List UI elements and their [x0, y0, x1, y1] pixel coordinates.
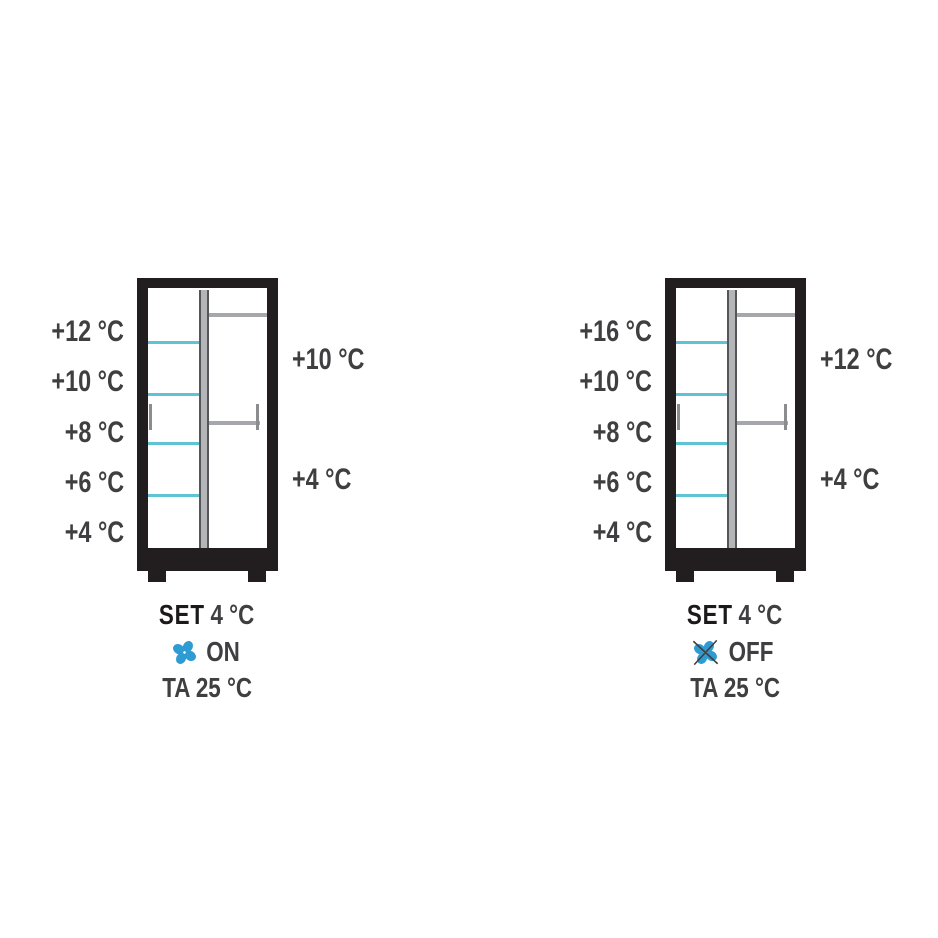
- cabinet-foot: [248, 571, 266, 582]
- fan-icon: [171, 639, 198, 666]
- left-temp-label: +12 °C: [24, 314, 124, 349]
- diagram-fan-off: +16 °C +10 °C +8 °C +6 °C +4 °C +12 °C +…: [552, 260, 938, 720]
- left-temp-label: +16 °C: [552, 314, 652, 349]
- sensor-mark-left: [677, 404, 680, 430]
- fan-off-icon: [692, 639, 719, 666]
- cabinet-outline: [665, 278, 806, 571]
- gray-shelf-top: [737, 313, 795, 317]
- caption-block: SET4 °C OFF TA 25 °C: [634, 598, 836, 705]
- gray-shelf-middle: [209, 421, 260, 425]
- temp-text: +6 °C: [65, 465, 124, 500]
- cabinet-foot: [676, 571, 694, 582]
- temp-text: +8 °C: [65, 415, 124, 450]
- cabinet-foot: [148, 571, 166, 582]
- set-temperature-line: SET4 °C: [634, 598, 836, 632]
- set-text: SET4 °C: [687, 598, 782, 632]
- temp-text: +10 °C: [292, 342, 364, 377]
- temp-text: +6 °C: [593, 465, 652, 500]
- fan-state-value: ON: [206, 635, 240, 669]
- sensor-mark-right: [784, 404, 787, 430]
- gray-shelf-middle: [737, 421, 788, 425]
- gray-shelf-top: [209, 313, 267, 317]
- glass-shelf-line: [148, 341, 199, 344]
- glass-shelf-line: [676, 494, 727, 497]
- set-value: 4 °C: [211, 599, 255, 630]
- temp-text: +10 °C: [580, 364, 652, 399]
- left-temp-label: +4 °C: [24, 515, 124, 550]
- left-temp-label: +10 °C: [552, 364, 652, 399]
- set-temperature-line: SET4 °C: [106, 598, 308, 632]
- set-value: 4 °C: [739, 599, 783, 630]
- ambient-temperature-line: TA 25 °C: [634, 671, 836, 705]
- temp-text: +4 °C: [820, 462, 879, 497]
- fan-status-line: OFF: [634, 637, 836, 667]
- diagram-fan-on: +12 °C +10 °C +8 °C +6 °C +4 °C +10 °C +…: [24, 260, 416, 720]
- glass-shelf-line: [148, 494, 199, 497]
- left-temp-label: +4 °C: [552, 515, 652, 550]
- right-temp-label: +4 °C: [292, 462, 416, 497]
- vertical-divider-panel: [199, 290, 209, 548]
- left-temp-label: +10 °C: [24, 364, 124, 399]
- fan-state-text: OFF: [723, 635, 779, 669]
- cabinet-outline: [137, 278, 278, 571]
- glass-shelf-line: [676, 393, 727, 396]
- left-temp-label: +6 °C: [552, 465, 652, 500]
- temp-text: +16 °C: [580, 314, 652, 349]
- temp-text: +12 °C: [52, 314, 124, 349]
- temp-text: +10 °C: [52, 364, 124, 399]
- set-label: SET: [687, 599, 733, 630]
- temp-text: +4 °C: [593, 515, 652, 550]
- caption-block: SET4 °C ON TA 25 °C: [106, 598, 308, 705]
- ambient-temperature-line: TA 25 °C: [106, 671, 308, 705]
- manual-diagram-page: +12 °C +10 °C +8 °C +6 °C +4 °C +10 °C +…: [0, 0, 938, 938]
- set-text: SET4 °C: [159, 598, 254, 632]
- temp-text: +8 °C: [593, 415, 652, 450]
- fan-status-line: ON: [106, 637, 308, 667]
- temp-text: +4 °C: [292, 462, 351, 497]
- sensor-mark-left: [149, 404, 152, 430]
- left-temp-label: +6 °C: [24, 465, 124, 500]
- ambient-text: TA 25 °C: [690, 671, 780, 705]
- ambient-text: TA 25 °C: [162, 671, 252, 705]
- glass-shelf-line: [148, 393, 199, 396]
- temp-text: +4 °C: [65, 515, 124, 550]
- left-temp-label: +8 °C: [24, 415, 124, 450]
- fan-state-value: OFF: [728, 635, 773, 669]
- cabinet-foot: [776, 571, 794, 582]
- vertical-divider-panel: [727, 290, 737, 548]
- glass-shelf-line: [676, 442, 727, 445]
- right-temp-label: +12 °C: [820, 342, 938, 377]
- right-temp-label: +10 °C: [292, 342, 416, 377]
- sensor-mark-right: [256, 404, 259, 430]
- right-temp-label: +4 °C: [820, 462, 938, 497]
- glass-shelf-line: [676, 341, 727, 344]
- set-label: SET: [159, 599, 205, 630]
- glass-shelf-line: [148, 442, 199, 445]
- fan-state-text: ON: [202, 635, 244, 669]
- left-temp-label: +8 °C: [552, 415, 652, 450]
- temp-text: +12 °C: [820, 342, 892, 377]
